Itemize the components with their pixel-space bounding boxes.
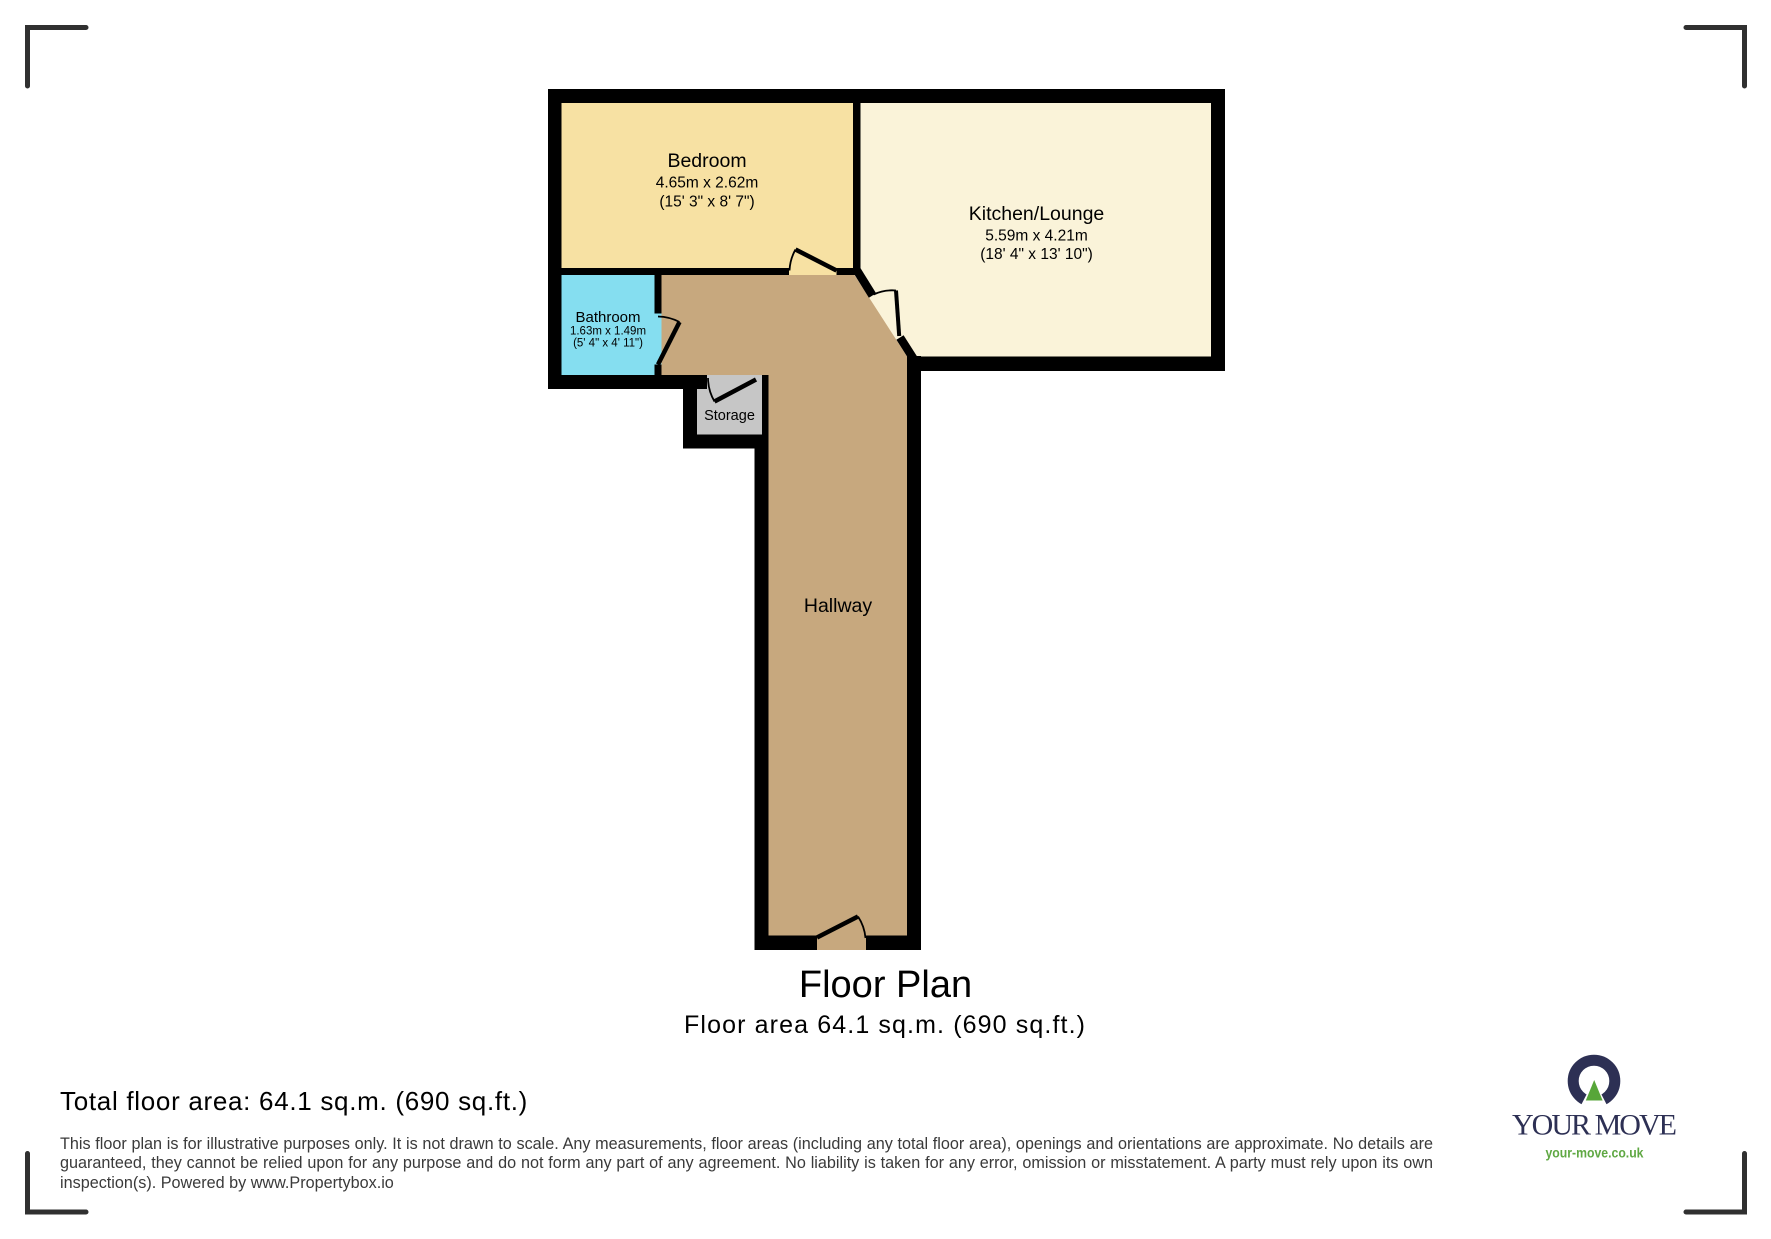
svg-text:Floor area 64.1 sq.m. (690 sq.: Floor area 64.1 sq.m. (690 sq.ft.) [684, 1011, 1085, 1039]
svg-text:(18' 4" x 13' 10"): (18' 4" x 13' 10") [980, 246, 1093, 263]
svg-text:your-move.co.uk: your-move.co.uk [1546, 1146, 1644, 1161]
svg-text:1.63m x 1.49m: 1.63m x 1.49m [570, 326, 646, 338]
svg-text:(15' 3" x 8' 7"): (15' 3" x 8' 7") [659, 194, 754, 211]
svg-text:(5' 4" x 4' 11"): (5' 4" x 4' 11") [573, 338, 643, 350]
svg-text:Kitchen/Lounge: Kitchen/Lounge [969, 203, 1105, 225]
svg-text:Hallway: Hallway [804, 595, 873, 617]
svg-text:4.65m x 2.62m: 4.65m x 2.62m [656, 175, 759, 192]
svg-text:Storage: Storage [704, 408, 755, 424]
svg-text:Bathroom: Bathroom [575, 309, 640, 326]
svg-text:5.59m x 4.21m: 5.59m x 4.21m [985, 228, 1088, 245]
svg-text:Bedroom: Bedroom [667, 150, 746, 172]
svg-text:YOUR MOVE: YOUR MOVE [1512, 1109, 1677, 1142]
svg-text:Floor Plan: Floor Plan [799, 964, 972, 1006]
